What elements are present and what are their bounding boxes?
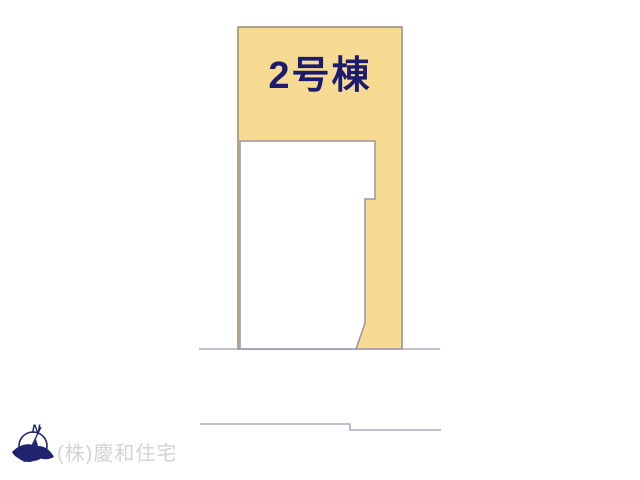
company-name-watermark: (株)慶和住宅: [57, 443, 177, 465]
building-footprint-shape: [240, 141, 375, 349]
site-plan-page: N 2号棟 (株)慶和住宅: [0, 0, 640, 480]
compass-north-letter: N: [32, 422, 41, 436]
compass-north-icon: N: [12, 422, 54, 462]
road-edge-line-lower: [200, 424, 441, 430]
building-number-label: 2号棟: [238, 56, 402, 98]
